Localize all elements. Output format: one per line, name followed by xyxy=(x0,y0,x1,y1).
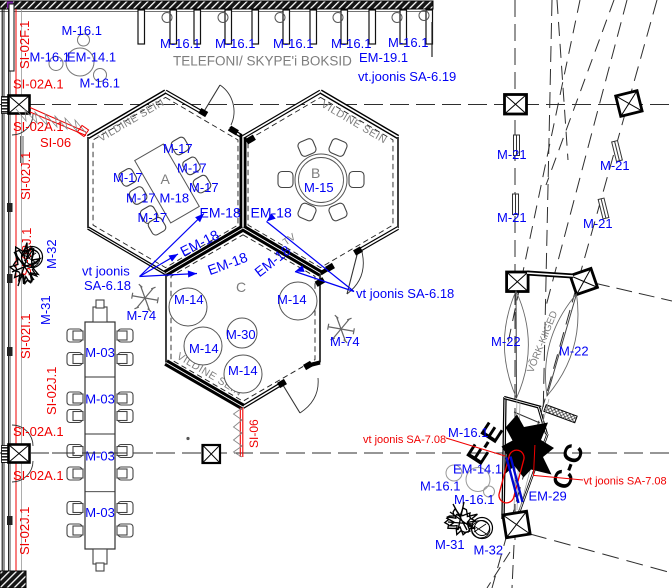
svg-text:EM-18: EM-18 xyxy=(251,205,292,221)
svg-text:M-16.1: M-16.1 xyxy=(160,36,200,51)
svg-text:M-32: M-32 xyxy=(474,543,504,558)
svg-text:M-03: M-03 xyxy=(85,449,115,464)
svg-text:M-16.1: M-16.1 xyxy=(331,36,371,51)
svg-text:vt joonis SA-7.08: vt joonis SA-7.08 xyxy=(363,434,446,446)
svg-text:EM-18: EM-18 xyxy=(200,205,241,221)
svg-text:M-14: M-14 xyxy=(277,292,307,307)
svg-text:M-14: M-14 xyxy=(189,341,219,356)
svg-text:M-17: M-17 xyxy=(138,210,168,225)
svg-text:SI-02J.1: SI-02J.1 xyxy=(17,507,32,555)
svg-text:M-16.1: M-16.1 xyxy=(388,35,428,50)
svg-text:M-74: M-74 xyxy=(330,334,360,349)
svg-text:M-74: M-74 xyxy=(127,308,157,323)
svg-text:M-03: M-03 xyxy=(85,345,115,360)
svg-text:M-17: M-17 xyxy=(113,170,143,185)
svg-text:vt joonis SA-6.18: vt joonis SA-6.18 xyxy=(356,286,454,301)
svg-text:M-21: M-21 xyxy=(583,216,613,231)
svg-text:M-21: M-21 xyxy=(497,210,527,225)
svg-text:M-16.1: M-16.1 xyxy=(80,76,120,91)
svg-text:EM-14.1: EM-14.1 xyxy=(67,50,116,65)
svg-text:EM-19.1: EM-19.1 xyxy=(359,50,408,65)
svg-text:M-17: M-17 xyxy=(163,141,193,156)
svg-text:SA-6.18: SA-6.18 xyxy=(84,278,131,293)
svg-text:M-17: M-17 xyxy=(177,161,207,176)
svg-text:M-30: M-30 xyxy=(226,327,256,342)
svg-text:M-15: M-15 xyxy=(304,180,334,195)
svg-text:M-16.1: M-16.1 xyxy=(454,492,494,507)
svg-text:M-17: M-17 xyxy=(126,191,156,206)
svg-text:SI-02J.1: SI-02J.1 xyxy=(44,367,59,415)
svg-text:EM-29: EM-29 xyxy=(529,489,567,504)
svg-text:M-16.1: M-16.1 xyxy=(62,23,102,38)
svg-text:M-32: M-32 xyxy=(44,239,59,269)
svg-text:B: B xyxy=(311,165,320,181)
svg-text:M-18: M-18 xyxy=(160,191,190,206)
svg-text:vt joonis SA-7.08: vt joonis SA-7.08 xyxy=(584,476,667,488)
svg-text:C: C xyxy=(236,279,246,295)
svg-text:EM-14.1: EM-14.1 xyxy=(453,462,502,477)
svg-text:SI-06: SI-06 xyxy=(40,135,71,150)
svg-text:vt joonis: vt joonis xyxy=(82,264,130,279)
svg-text:vt.joonis SA-6.19: vt.joonis SA-6.19 xyxy=(358,69,456,84)
svg-text:M-21: M-21 xyxy=(600,158,630,173)
svg-text:M-16.1: M-16.1 xyxy=(448,425,488,440)
svg-text:M-16.1: M-16.1 xyxy=(215,36,255,51)
svg-text:M-16.1: M-16.1 xyxy=(273,36,313,51)
svg-text:M-03: M-03 xyxy=(85,392,115,407)
svg-text:M-03: M-03 xyxy=(85,505,115,520)
svg-text:M-17: M-17 xyxy=(189,180,219,195)
svg-text:SI-02A.1: SI-02A.1 xyxy=(13,468,64,483)
svg-text:M-31: M-31 xyxy=(435,537,465,552)
svg-text:M-14: M-14 xyxy=(228,363,258,378)
svg-text:M-22: M-22 xyxy=(491,334,521,349)
svg-text:SI-02A.1: SI-02A.1 xyxy=(13,424,64,439)
svg-text:SI-02J.1: SI-02J.1 xyxy=(18,152,33,200)
svg-text:M-31: M-31 xyxy=(38,295,53,325)
svg-text:M-22: M-22 xyxy=(559,344,589,359)
svg-text:SI-02A.1: SI-02A.1 xyxy=(13,77,64,92)
svg-text:SI-06: SI-06 xyxy=(247,419,261,448)
svg-text:M-21: M-21 xyxy=(497,147,527,162)
svg-text:M-16.1: M-16.1 xyxy=(30,50,70,65)
svg-text:SI-02I.1: SI-02I.1 xyxy=(18,313,33,359)
svg-text:M-14: M-14 xyxy=(174,292,204,307)
svg-text:A: A xyxy=(161,171,171,187)
svg-text:TELEFONI/ SKYPE'i BOKSID: TELEFONI/ SKYPE'i BOKSID xyxy=(173,54,352,69)
